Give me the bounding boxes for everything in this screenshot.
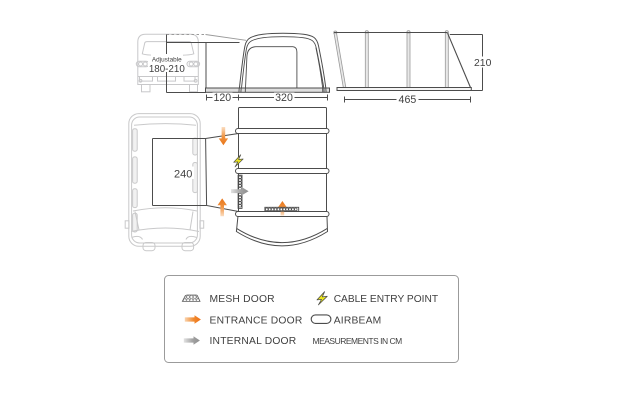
svg-text:Adjustable: Adjustable <box>152 56 182 63</box>
svg-text:INTERNAL DOOR: INTERNAL DOOR <box>210 336 297 347</box>
svg-text:ENTRANCE DOOR: ENTRANCE DOOR <box>210 315 303 326</box>
svg-text:120: 120 <box>213 92 231 104</box>
svg-text:180-210: 180-210 <box>149 64 186 75</box>
svg-text:CABLE ENTRY POINT: CABLE ENTRY POINT <box>334 294 438 305</box>
svg-text:AIRBEAM: AIRBEAM <box>334 315 382 326</box>
svg-text:MESH DOOR: MESH DOOR <box>210 294 275 305</box>
svg-text:465: 465 <box>399 94 417 106</box>
svg-text:320: 320 <box>275 92 293 104</box>
svg-text:240: 240 <box>174 168 192 180</box>
svg-text:MEASUREMENTS IN CM: MEASUREMENTS IN CM <box>313 336 403 346</box>
svg-text:210: 210 <box>474 58 492 69</box>
